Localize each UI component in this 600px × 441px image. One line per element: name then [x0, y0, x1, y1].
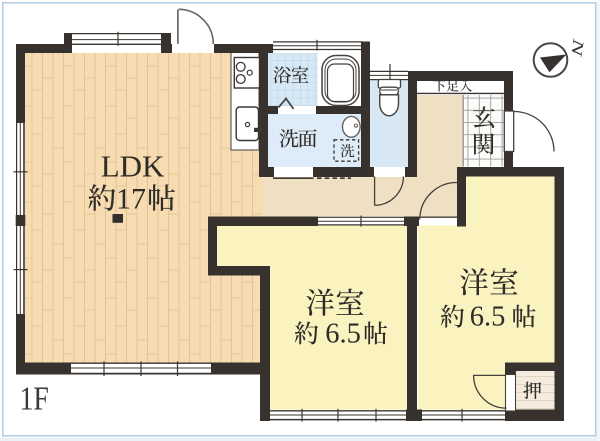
svg-text:LDK: LDK [101, 149, 165, 184]
svg-text:17: 17 [116, 183, 146, 216]
svg-text:6.5: 6.5 [470, 302, 506, 333]
svg-text:1F: 1F [20, 379, 49, 417]
svg-text:6.5: 6.5 [325, 319, 361, 350]
